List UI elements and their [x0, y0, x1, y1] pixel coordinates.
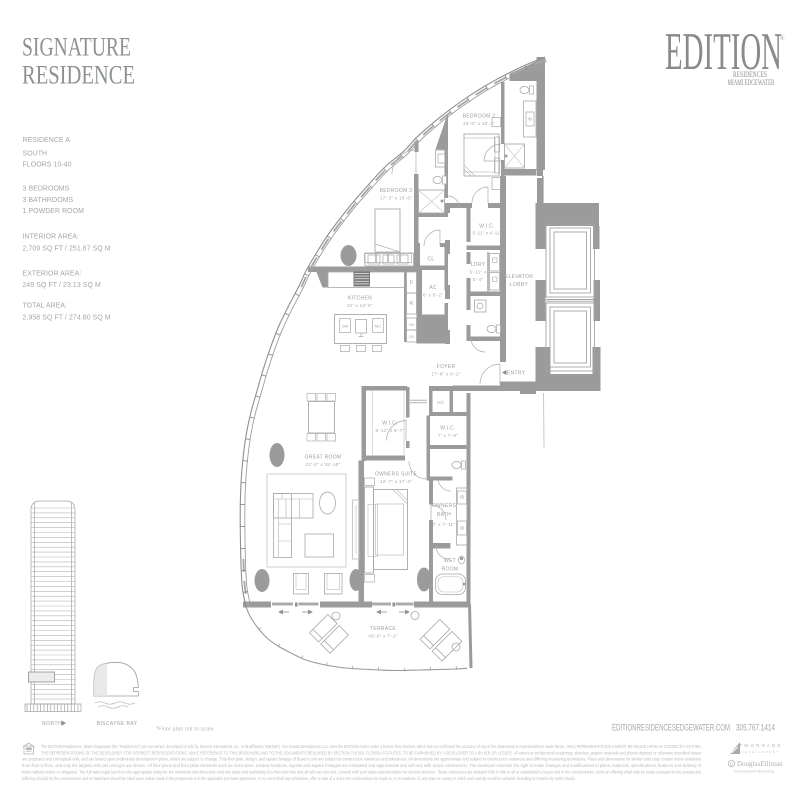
svg-text:T W O R O A D S: T W O R O A D S — [739, 743, 780, 748]
svg-text:TOTAL AREA:: TOTAL AREA: — [23, 303, 68, 310]
svg-text:FLOORS 10-40: FLOORS 10-40 — [23, 162, 72, 169]
svg-text:22' x 14'-6": 22' x 14'-6" — [347, 303, 373, 308]
svg-text:KITCHEN: KITCHEN — [348, 296, 372, 302]
svg-text:AC: AC — [437, 400, 444, 406]
svg-text:BEDROOM 2: BEDROOM 2 — [463, 114, 496, 120]
svg-text:DW: DW — [342, 325, 349, 329]
svg-text:RESIDENCE: RESIDENCE — [22, 61, 135, 90]
svg-text:5'-4": 5'-4" — [473, 277, 484, 282]
svg-text:FOYER: FOYER — [437, 364, 456, 370]
svg-text:OWNERS: OWNERS — [432, 503, 457, 509]
svg-text:305.767.1414: 305.767.1414 — [736, 723, 775, 734]
svg-text:MC: MC — [375, 325, 381, 329]
svg-text:EDITIONRESIDENCESEDGEWATER.COM: EDITIONRESIDENCESEDGEWATER.COM — [612, 723, 730, 734]
svg-text:12'-7" x 17'-4": 12'-7" x 17'-4" — [380, 479, 412, 484]
svg-text:7' x 7'-8": 7' x 7'-8" — [438, 433, 458, 438]
svg-text:17'-3" x 16'-6": 17'-3" x 16'-6" — [380, 196, 412, 201]
svg-text:OWNERS SUITE: OWNERS SUITE — [375, 472, 418, 478]
svg-text:LDRY: LDRY — [471, 262, 486, 268]
svg-text:6' x 6'-2": 6' x 6'-2" — [423, 293, 443, 298]
svg-text:BISCAYNE BAY: BISCAYNE BAY — [97, 721, 138, 727]
svg-text:Development Marketing: Development Marketing — [734, 770, 774, 774]
svg-text:ENTRY: ENTRY — [507, 371, 526, 377]
svg-text:MIAMI EDGEWATER: MIAMI EDGEWATER — [728, 78, 775, 87]
svg-text:R: R — [410, 301, 414, 307]
svg-text:1 POWDER ROOM: 1 POWDER ROOM — [23, 208, 85, 215]
svg-text:BATH: BATH — [437, 512, 451, 518]
svg-text:249 SQ FT / 23.13 SQ M: 249 SQ FT / 23.13 SQ M — [23, 282, 101, 289]
svg-text:OV: OV — [409, 335, 415, 339]
svg-text:2,709 SQ FT / 251.67 SQ M: 2,709 SQ FT / 251.67 SQ M — [23, 246, 111, 253]
svg-text:3 BATHROOMS: 3 BATHROOMS — [23, 197, 74, 204]
svg-text:INTERIOR AREA:: INTERIOR AREA: — [23, 234, 80, 241]
svg-text:OV: OV — [409, 323, 415, 327]
svg-text:*Floor plan not to scale.: *Floor plan not to scale. — [156, 727, 216, 733]
svg-text:ROOM: ROOM — [442, 567, 459, 573]
svg-text:CL: CL — [428, 257, 435, 263]
svg-text:home without notice or obligat: home without notice or obligation. The f… — [22, 769, 702, 774]
svg-text:EXTERIOR AREA:: EXTERIOR AREA: — [23, 271, 82, 278]
svg-text:THE REPRESENTATIONS OF THE DEV: THE REPRESENTATIONS OF THE DEVELOPER. FO… — [41, 750, 701, 755]
svg-text:5'-11" x 4'-11": 5'-11" x 4'-11" — [472, 231, 501, 236]
svg-text:W.I.C.: W.I.C. — [382, 421, 397, 427]
svg-text:LOBBY: LOBBY — [510, 282, 529, 288]
svg-text:3 BEDROOMS: 3 BEDROOMS — [23, 186, 70, 193]
svg-text:SOUTH: SOUTH — [23, 151, 48, 158]
svg-text:SIGNATURE: SIGNATURE — [22, 33, 131, 62]
svg-text:®: ® — [780, 35, 785, 42]
svg-text:RESIDENCE A: RESIDENCE A — [23, 137, 71, 144]
svg-text:D E V E L O P M E N T: D E V E L O P M E N T — [741, 750, 778, 754]
svg-text:D: D — [730, 762, 733, 767]
svg-text:WET: WET — [444, 558, 456, 564]
svg-text:W.I.C.: W.I.C. — [479, 224, 494, 230]
svg-text:F: F — [410, 280, 413, 286]
svg-text:ELEVATOR: ELEVATOR — [505, 274, 533, 280]
svg-text:AC: AC — [429, 285, 437, 291]
svg-text:TERRACE: TERRACE — [370, 626, 396, 632]
svg-text:DouglasElliman: DouglasElliman — [737, 760, 783, 768]
svg-text:W.I.C.: W.I.C. — [440, 426, 455, 432]
svg-text:43'-6" x 7'-1": 43'-6" x 7'-1" — [368, 634, 397, 639]
svg-text:from floor to floor, and only: from floor to floor, and only the larges… — [22, 763, 702, 768]
svg-text:2,958 SQ FT / 274.80 SQ M: 2,958 SQ FT / 274.80 SQ M — [23, 315, 111, 322]
svg-text:22'-2" x 35'-10": 22'-2" x 35'-10" — [306, 462, 341, 467]
svg-text:6'-11" x 8'-7": 6'-11" x 8'-7" — [375, 428, 404, 433]
svg-text:The EDITION Residences, Miami: The EDITION Residences, Miami Edgewater … — [41, 744, 701, 749]
svg-text:are proposed and conceptual on: are proposed and conceptual only, and ar… — [22, 757, 702, 762]
svg-text:10'-0" x 16'-4": 10'-0" x 16'-4" — [463, 121, 495, 126]
svg-text:BEDROOM 3: BEDROOM 3 — [380, 188, 413, 194]
svg-text:5'-11" x: 5'-11" x — [469, 270, 486, 275]
svg-text:NORTH: NORTH — [42, 721, 62, 727]
svg-text:(offering circular) for the co: (offering circular) for the condominium … — [22, 776, 576, 781]
svg-text:GREAT ROOM: GREAT ROOM — [305, 455, 342, 461]
svg-text:7' x 7'-11": 7' x 7'-11" — [433, 522, 456, 527]
svg-text:17'-6" x 6'-2": 17'-6" x 6'-2" — [431, 372, 460, 377]
